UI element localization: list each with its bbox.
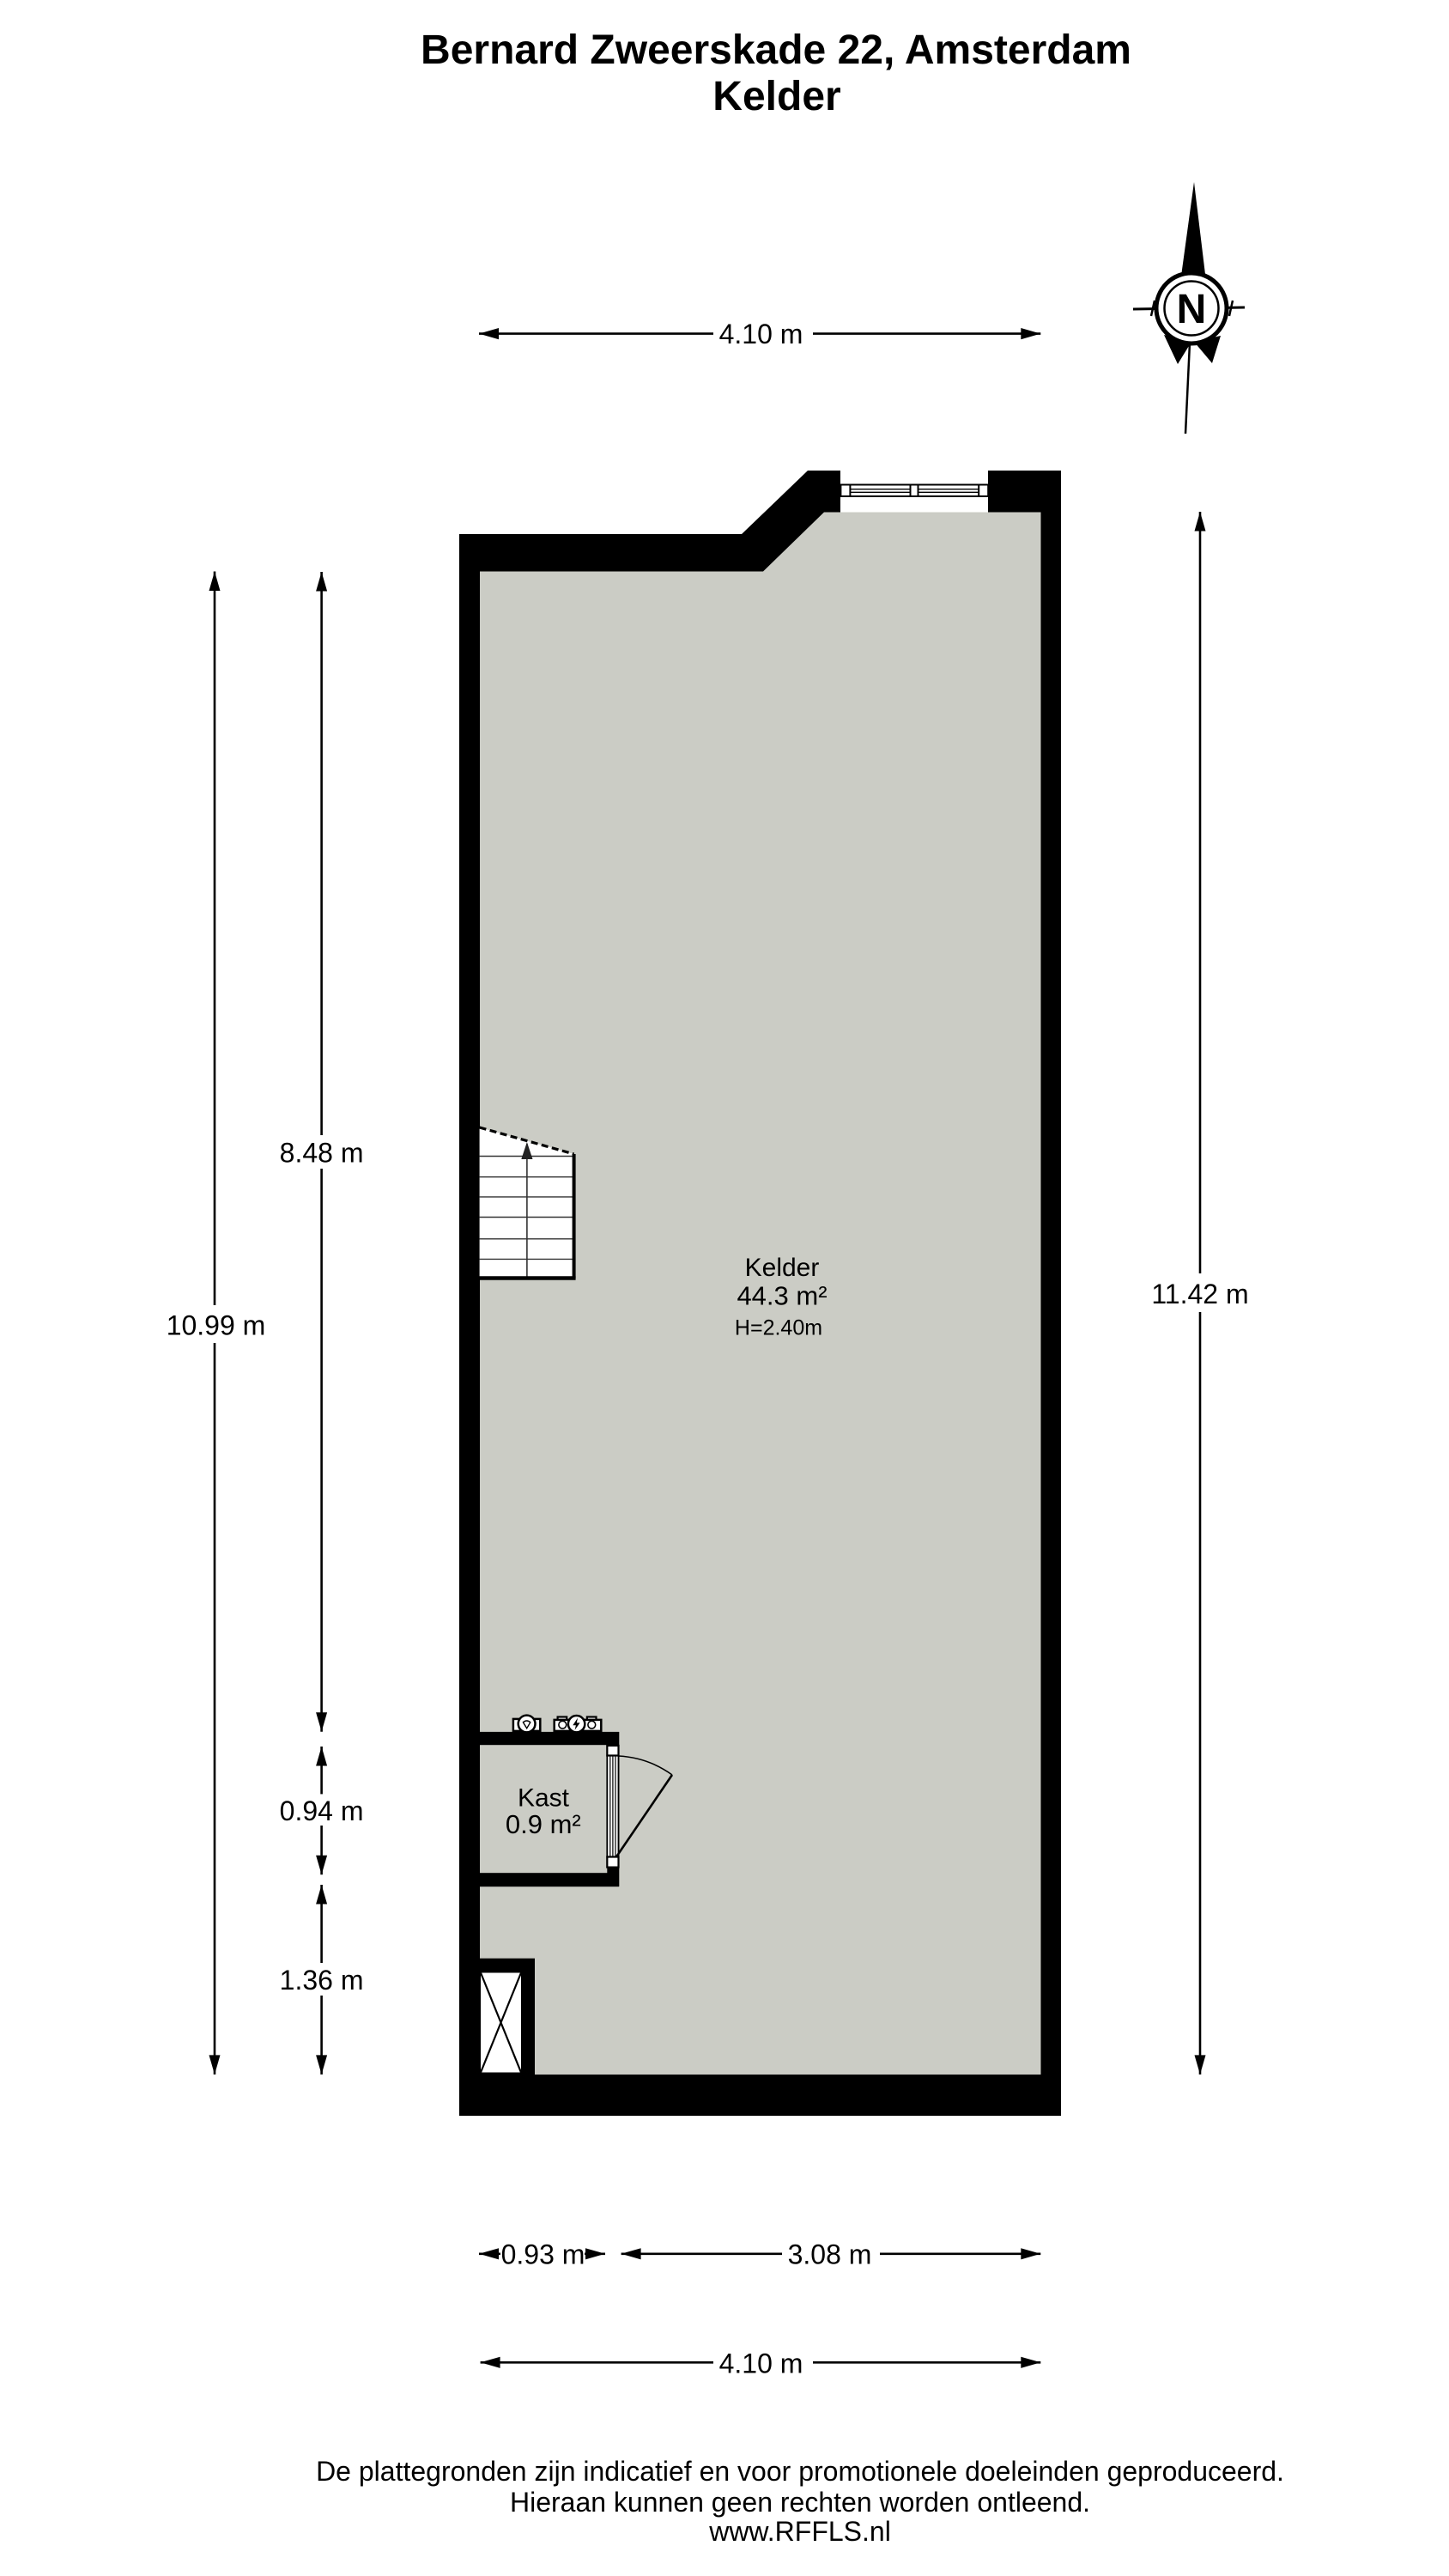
svg-text:Bernard Zweerskade 22, Amsterd: Bernard Zweerskade 22, Amsterdam [421, 27, 1131, 73]
svg-text:N: N [1177, 287, 1207, 332]
svg-text:Hieraan kunnen geen rechten wo: Hieraan kunnen geen rechten worden ontle… [510, 2487, 1090, 2518]
svg-text:4.10 m: 4.10 m [719, 2348, 803, 2379]
svg-text:1.36 m: 1.36 m [280, 1965, 364, 1996]
svg-text:De plattegronden zijn indicati: De plattegronden zijn indicatief en voor… [316, 2456, 1284, 2487]
svg-text:8.48 m: 8.48 m [280, 1137, 364, 1168]
svg-text:0.94 m: 0.94 m [280, 1795, 364, 1826]
svg-text:4.10 m: 4.10 m [719, 319, 803, 349]
svg-text:Kelder: Kelder [712, 74, 840, 119]
svg-text:10.99 m: 10.99 m [167, 1310, 266, 1341]
svg-text:www.RFFLS.nl: www.RFFLS.nl [708, 2516, 891, 2547]
svg-text:Kast: Kast [518, 1784, 570, 1813]
svg-text:11.42 m: 11.42 m [1151, 1279, 1248, 1309]
svg-text:0.93 m: 0.93 m [501, 2239, 585, 2270]
svg-text:Kelder: Kelder [745, 1254, 820, 1282]
svg-text:44.3 m²: 44.3 m² [737, 1281, 827, 1311]
svg-text:H=2.40m: H=2.40m [735, 1316, 822, 1340]
svg-text:0.9 m²: 0.9 m² [506, 1809, 581, 1839]
svg-text:3.08 m: 3.08 m [788, 2239, 872, 2270]
